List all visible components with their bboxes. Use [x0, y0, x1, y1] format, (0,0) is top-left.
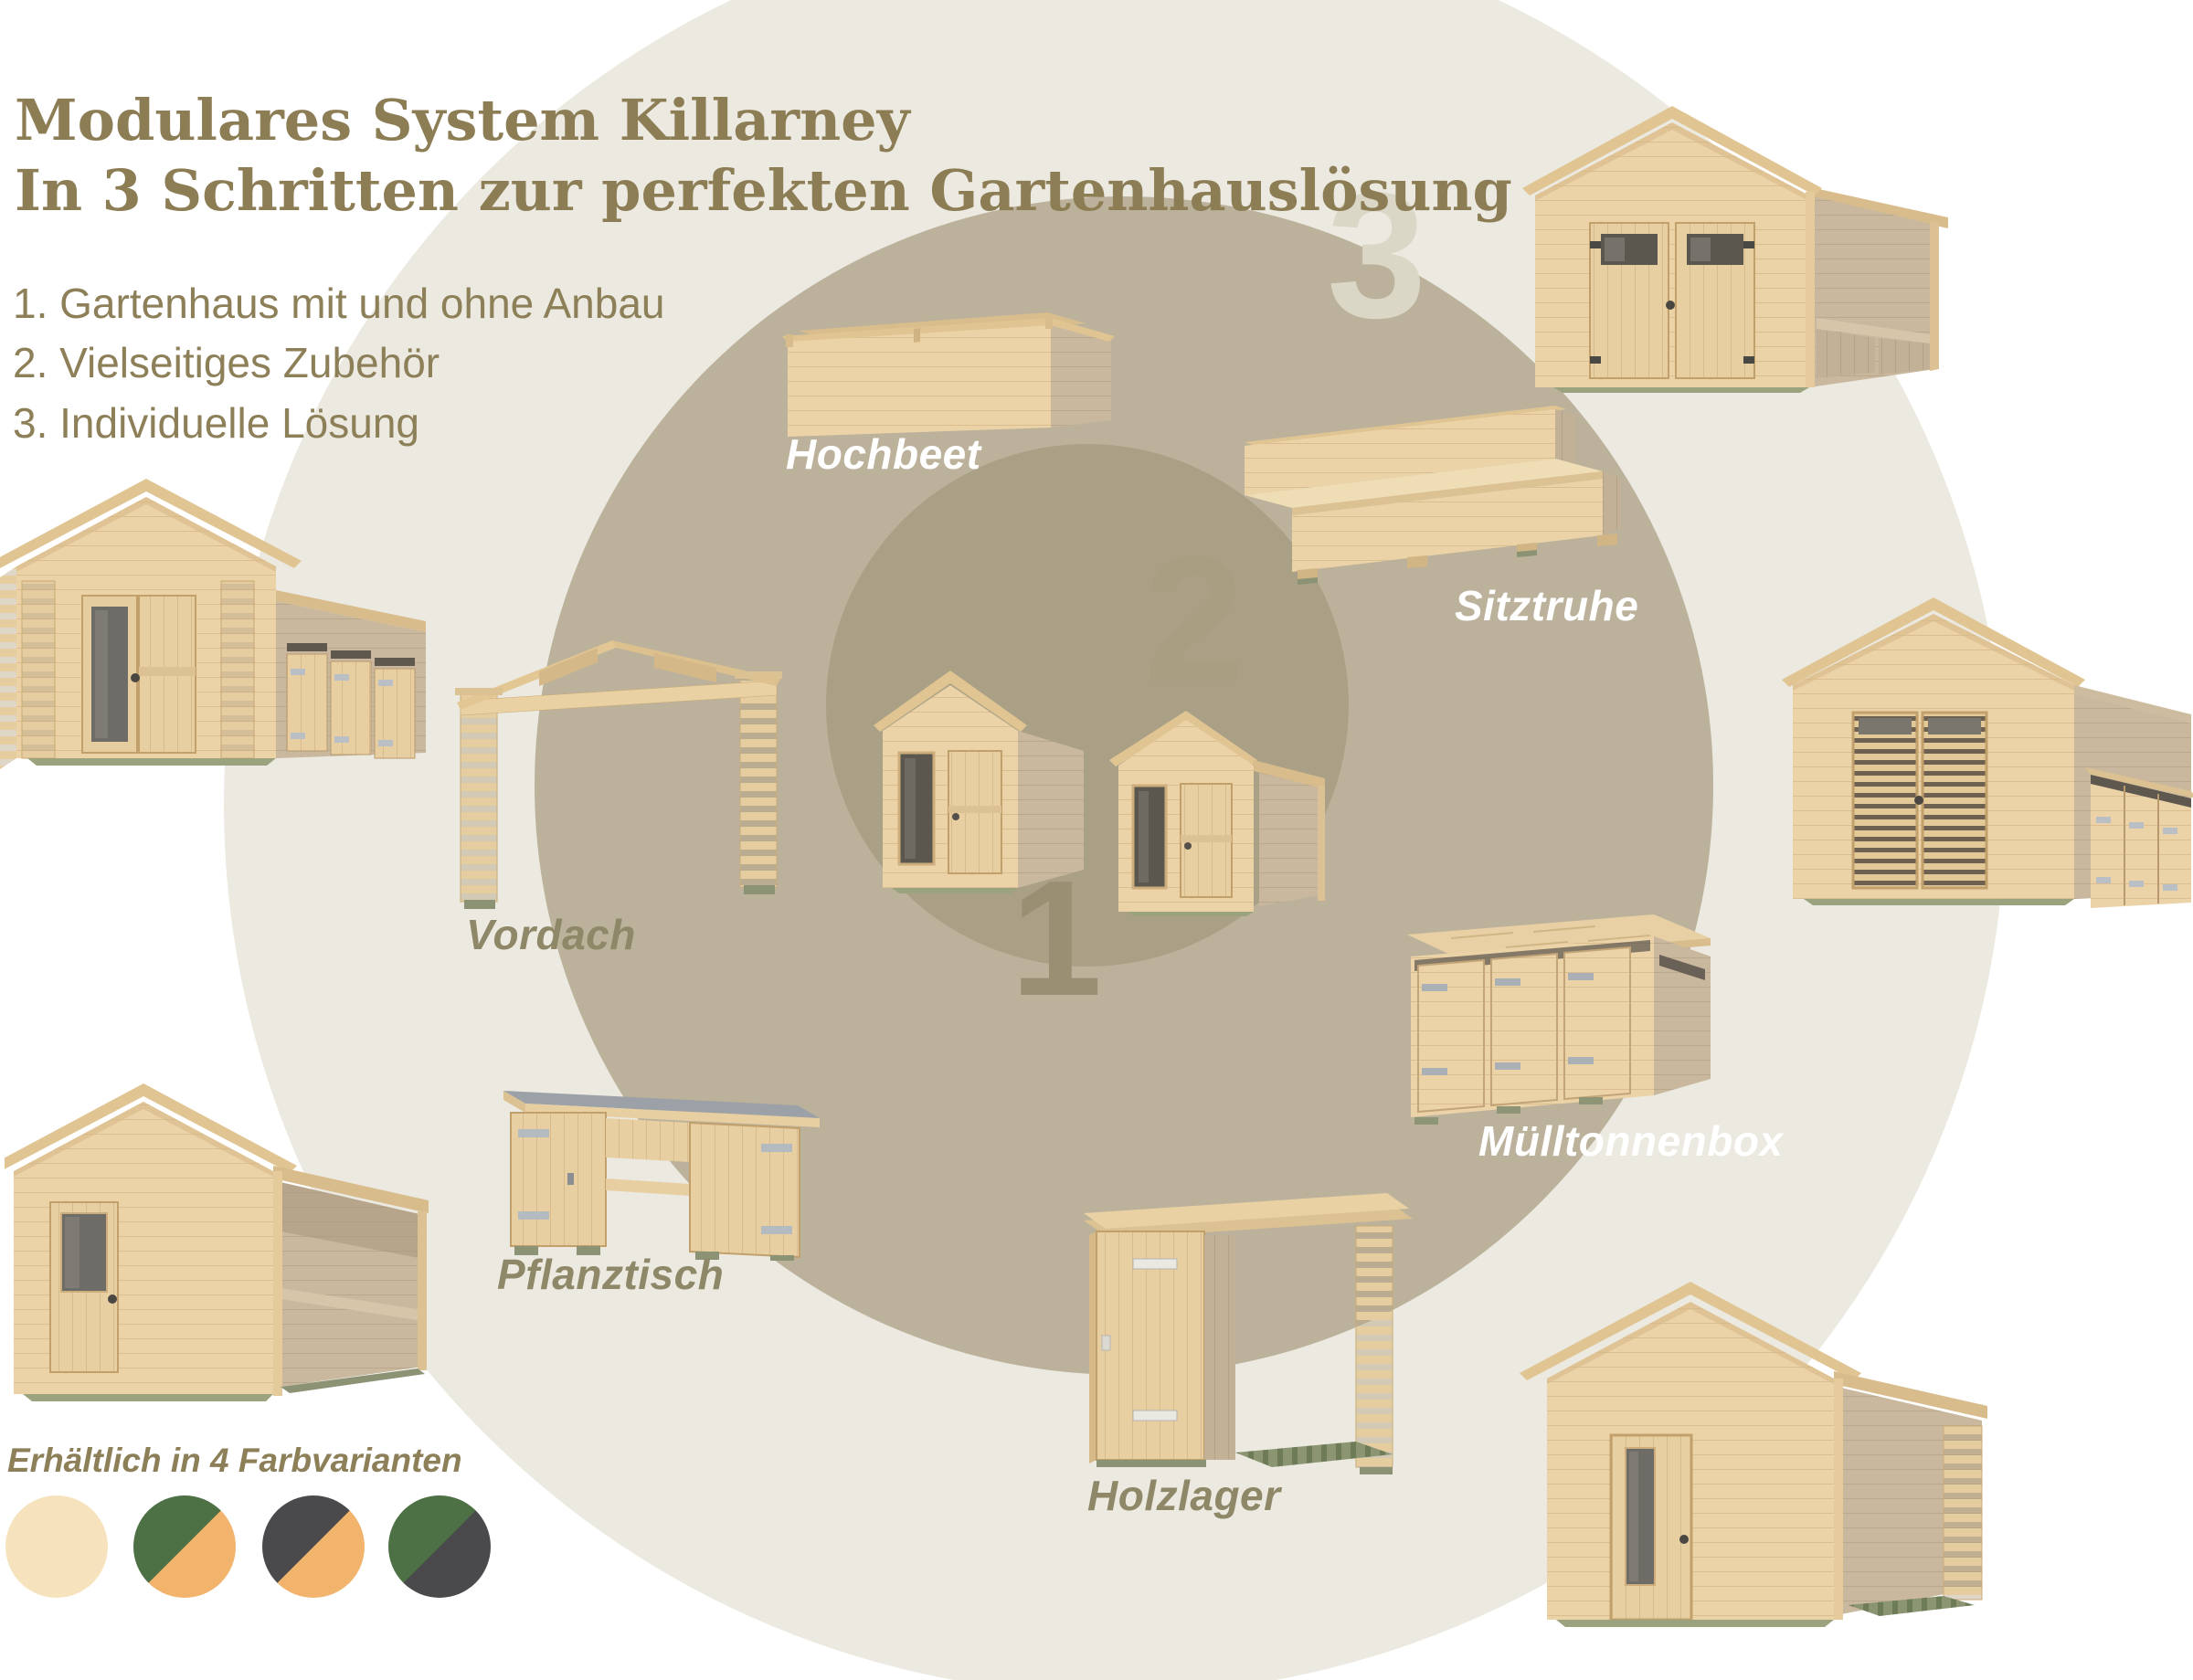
- step-item-3: 3. Individuelle Lösung: [13, 394, 665, 453]
- step-item-1: 1. Gartenhaus mit und ohne Anbau: [13, 274, 665, 333]
- color-swatch-anthrazit-orange: [262, 1495, 365, 1598]
- label-hochbeet: Hochbeet: [786, 429, 981, 479]
- gartenhaus-mit-unterstand-links-image: [5, 1076, 439, 1416]
- color-swatch-gruen-anthrazit: [388, 1495, 491, 1598]
- killarney-infographic: 3 2 1 Modulares System Killarney In 3 Sc…: [0, 0, 2193, 1680]
- gartenhaus-lamellentueren-rechts-image: [1734, 592, 2193, 921]
- hochbeet-image: [775, 294, 1118, 440]
- gartenhaus-mit-anbau-top-image: [1499, 99, 1960, 396]
- pflanztisch-image: [496, 1071, 827, 1261]
- color-variants-heading: Erhältlich in 4 Farbvarianten: [7, 1442, 462, 1480]
- title-line-2: In 3 Schritten zur perfekten Gartenhausl…: [15, 156, 1512, 227]
- page-title: Modulares System Killarney In 3 Schritte…: [15, 86, 1512, 227]
- color-swatch-gruen-orange: [133, 1495, 236, 1598]
- vordach-image: [437, 608, 800, 918]
- color-swatch-natur: [5, 1495, 108, 1598]
- label-sitztruhe: Sitztruhe: [1455, 581, 1638, 630]
- label-vordach: Vordach: [466, 910, 636, 959]
- gartenhaus-lamellen-links-image: [0, 473, 439, 775]
- step-list: 1. Gartenhaus mit und ohne Anbau 2. Viel…: [13, 274, 665, 453]
- muelltonnenbox-image: [1396, 900, 1718, 1128]
- label-pflanztisch: Pflanztisch: [497, 1250, 724, 1299]
- holzlager-image: [1078, 1180, 1418, 1482]
- gartenhaus-mit-holzlager-rechts-image: [1503, 1265, 1992, 1644]
- step-item-2: 2. Vielseitiges Zubehör: [13, 333, 665, 393]
- title-line-1: Modulares System Killarney: [15, 86, 1512, 156]
- gartenhaus-basis-paar-image: [870, 669, 1327, 917]
- sitztruhe-image: [1234, 400, 1631, 594]
- label-muelltonnenbox: Mülltonnenbox: [1478, 1116, 1784, 1166]
- label-holzlager: Holzlager: [1087, 1471, 1281, 1520]
